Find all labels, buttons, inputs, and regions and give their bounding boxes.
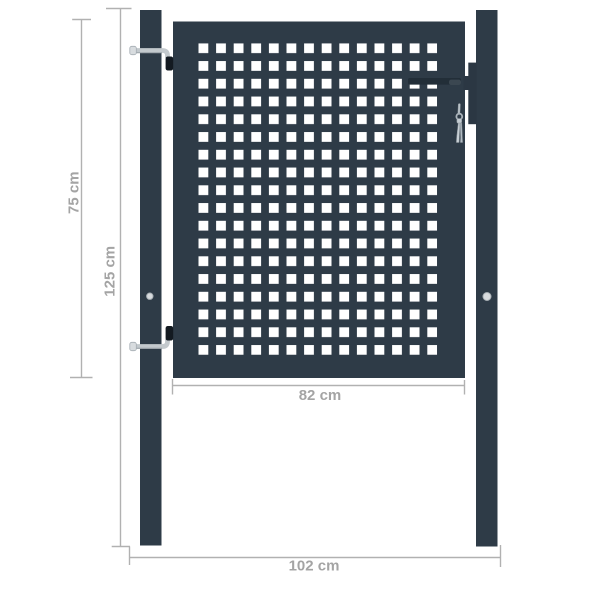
svg-text:75 cm: 75 cm [66,171,83,214]
svg-text:125 cm: 125 cm [102,246,119,297]
svg-text:102 cm: 102 cm [289,558,340,575]
svg-text:82 cm: 82 cm [299,387,342,404]
